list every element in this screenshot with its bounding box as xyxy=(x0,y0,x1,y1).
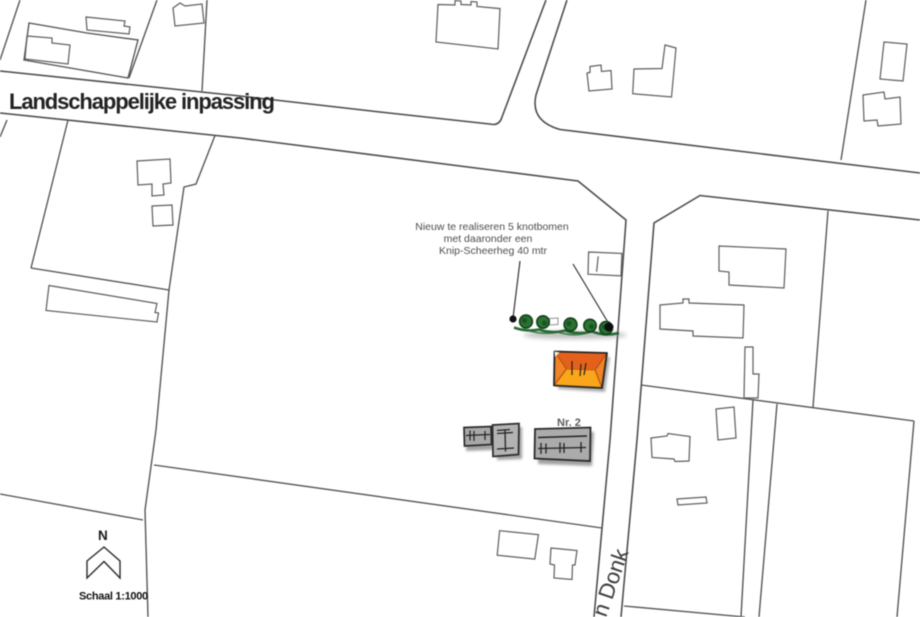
svg-text:Schaal 1:1000: Schaal 1:1000 xyxy=(79,591,148,603)
svg-text:Knip-Scheerheg 40 mtr: Knip-Scheerheg 40 mtr xyxy=(439,245,547,257)
svg-text:Nieuw te realiseren 5 knotbome: Nieuw te realiseren 5 knotbomen xyxy=(415,221,569,233)
svg-text:N: N xyxy=(98,528,108,543)
svg-text:met daaronder een: met daaronder een xyxy=(444,233,533,245)
svg-text:Landschappelijke inpassing: Landschappelijke inpassing xyxy=(9,89,274,114)
